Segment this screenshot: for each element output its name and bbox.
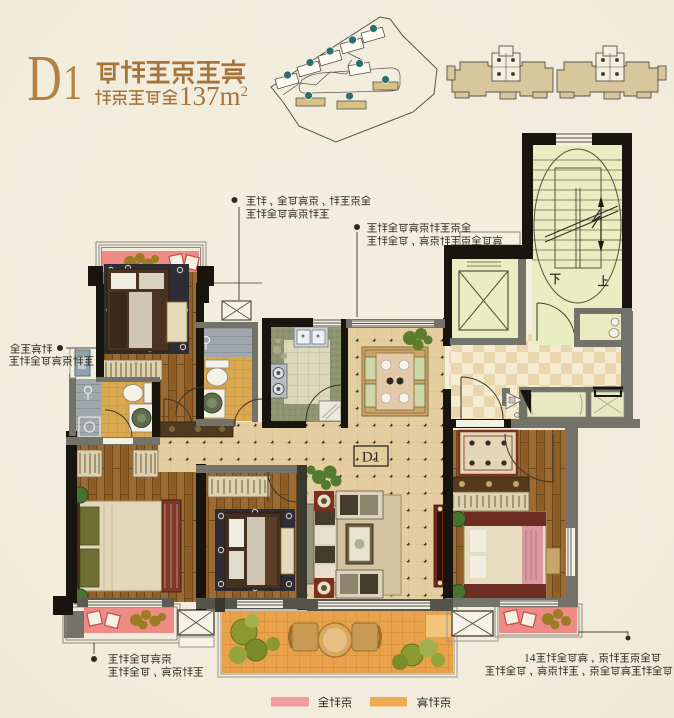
svg-text:D1: D1 — [362, 450, 380, 466]
svg-text:14: 14 — [524, 653, 536, 665]
svg-text:D: D — [27, 43, 61, 115]
svg-text:137m2: 137m2 — [179, 81, 248, 111]
svg-text:1: 1 — [63, 54, 82, 110]
